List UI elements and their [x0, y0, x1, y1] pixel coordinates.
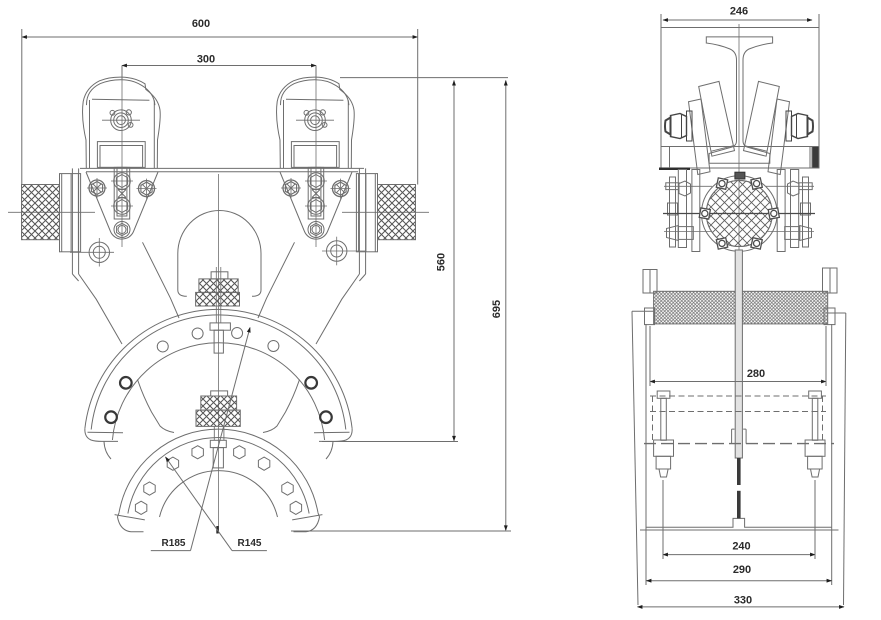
svg-text:240: 240: [732, 541, 750, 553]
svg-text:560: 560: [436, 253, 448, 271]
svg-text:290: 290: [733, 564, 751, 576]
svg-text:600: 600: [192, 18, 210, 30]
svg-text:246: 246: [730, 6, 748, 18]
svg-text:330: 330: [734, 595, 752, 607]
svg-text:695: 695: [491, 300, 503, 318]
svg-text:R145: R145: [238, 538, 262, 549]
svg-text:280: 280: [747, 368, 765, 380]
svg-text:R185: R185: [162, 538, 186, 549]
svg-text:300: 300: [197, 54, 215, 66]
